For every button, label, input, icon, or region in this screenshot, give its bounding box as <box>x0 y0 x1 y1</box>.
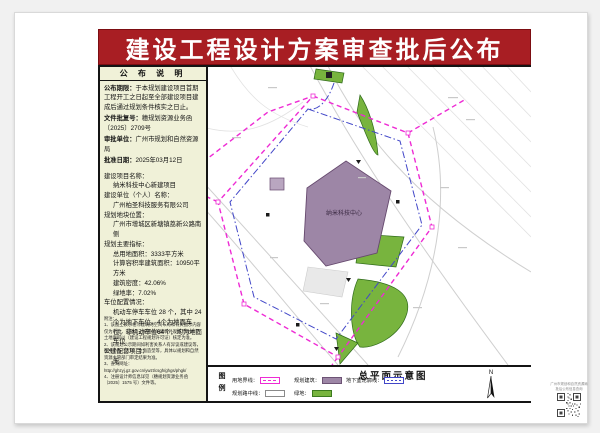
notice-row: 批准日期：2025年03月12日 <box>104 156 202 165</box>
notice-panel-body: 公布期限：于本规划建设项目首期工程开工之日起至全部建设项目建成后通过规划条件核实… <box>100 81 206 166</box>
legend-item-basement: 地下室轮廓线： <box>346 377 404 384</box>
legend-box-label: 图 例 <box>214 371 230 395</box>
note-line: 1、该图上表示相邻建筑的空间布局和有关图示内容仅为示意，实际以上报图纸的建筑外观… <box>104 322 202 341</box>
site-plan-map: 纳米科技中心 <box>208 67 531 365</box>
title-banner: 建设工程设计方案审查批后公布 <box>98 29 531 65</box>
detail-line: 总用地面积：3333平方米 <box>104 250 202 260</box>
notice-poster-page: 建设工程设计方案审查批后公布 公 布 说 明 公布期限：于本规划建设项目首期工程… <box>14 12 588 424</box>
footnotes-section: 附注：1、该图上表示相邻建筑的空间布局和有关图示内容仅为示意，实际以上报图纸的建… <box>100 314 206 389</box>
detail-line: 绿地率：7.02% <box>104 289 202 299</box>
detail-line: 车位配置情况： <box>104 298 202 308</box>
detail-line: 规划地块位置： <box>104 211 202 221</box>
detail-line: 建设项目名称： <box>104 172 202 182</box>
qr-caption: 广州市规划和自然资源局 批后公布信息查询 <box>546 382 592 392</box>
detail-line: 建筑密度：42.06% <box>104 279 202 289</box>
green-area-bottom <box>351 279 407 347</box>
note-line: 3、查询网址：http://ghzyj.gz.gov.cn/ywzt/csgh/… <box>104 361 202 374</box>
notice-panel: 公 布 说 明 公布期限：于本规划建设项目首期工程开工之日起至全部建设项目建成后… <box>100 67 208 401</box>
north-arrow-icon: N <box>482 368 500 401</box>
main-frame: 公 布 说 明 公布期限：于本规划建设项目首期工程开工之日起至全部建设项目建成后… <box>98 65 531 403</box>
qr-code <box>557 393 581 417</box>
legend-item-road-centerline: 规划路中线： <box>232 390 285 397</box>
notice-row: 审批单位：广州市规划和自然资源局 <box>104 135 202 154</box>
building-footprint: 纳米科技中心 <box>270 161 391 266</box>
legend-strip: 图 例 总平面示意图 用地界线： 规划建筑： 地下室轮廓线： 规划路中线： 绿地… <box>208 365 531 401</box>
green-fill-swatch-icon <box>312 390 332 397</box>
building-label: 纳米科技中心 <box>326 209 362 217</box>
basement-outline-swatch-icon <box>384 377 404 384</box>
notice-row: 文件批复号：穗规划资源业务函〔2025〕2709号 <box>104 114 202 133</box>
legend-item-boundary: 用地界线： <box>232 377 280 384</box>
qr-panel: 广州市规划和自然资源局 批后公布信息查询 <box>546 382 592 422</box>
plaza-area <box>303 267 348 297</box>
note-line: 4、注册设计师信息详见（穗规划资源业务函〔2025〕1575 号）文件等。 <box>104 374 202 387</box>
road-centerline-swatch-icon <box>265 390 285 397</box>
detail-line: 广州柏圣科技服务有限公司 <box>104 201 202 211</box>
detail-line: 纳米科技中心新建项目 <box>104 181 202 191</box>
detail-line: 规划主要指标： <box>104 240 202 250</box>
detail-line: 计算容积率建筑面积：10950平方米 <box>104 259 202 279</box>
notice-row: 公布期限：于本规划建设项目首期工程开工之日起至全部建设项目建成后通过规划条件核实… <box>104 84 202 112</box>
legend-item-green: 绿地： <box>294 390 332 397</box>
boundary-line-swatch-icon <box>260 377 280 384</box>
legend-item-building: 规划建筑： <box>294 377 342 384</box>
note-line: 2、该规划公示期间如利害关系人有异议或建议等，图中小品、大样、立面造型等，具体以… <box>104 342 202 361</box>
site-plan-drawing: 纳米科技中心 <box>208 67 531 365</box>
detail-line: 建设单位（个人）名称： <box>104 191 202 201</box>
svg-text:N: N <box>489 370 493 376</box>
detail-line: 广州市增城区新塘镇荔新公路南侧 <box>104 220 202 240</box>
page-title: 建设工程设计方案审查批后公布 <box>126 30 504 65</box>
structure-marker <box>326 72 332 78</box>
notice-panel-header: 公 布 说 明 <box>100 67 206 81</box>
building-fill-swatch-icon <box>322 377 342 384</box>
green-area-right <box>357 95 378 155</box>
